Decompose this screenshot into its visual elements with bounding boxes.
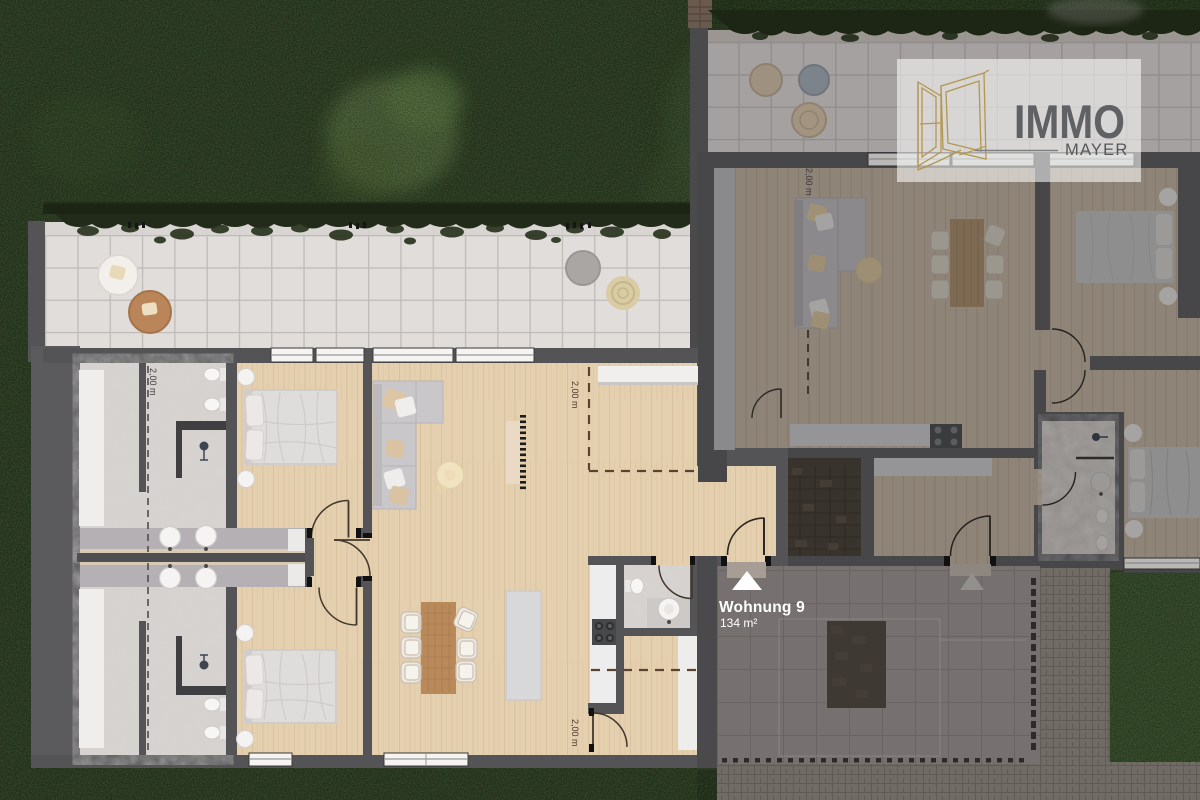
svg-text:2,00 m: 2,00 m	[804, 168, 814, 196]
svg-text:2,00 m: 2,00 m	[570, 381, 580, 409]
svg-text:MAYER: MAYER	[1065, 141, 1128, 159]
svg-text:2,00 m: 2,00 m	[570, 719, 580, 747]
svg-text:134 m²: 134 m²	[720, 616, 757, 630]
svg-text:Wohnung 9: Wohnung 9	[719, 599, 805, 616]
svg-text:2,00 m: 2,00 m	[148, 368, 158, 396]
